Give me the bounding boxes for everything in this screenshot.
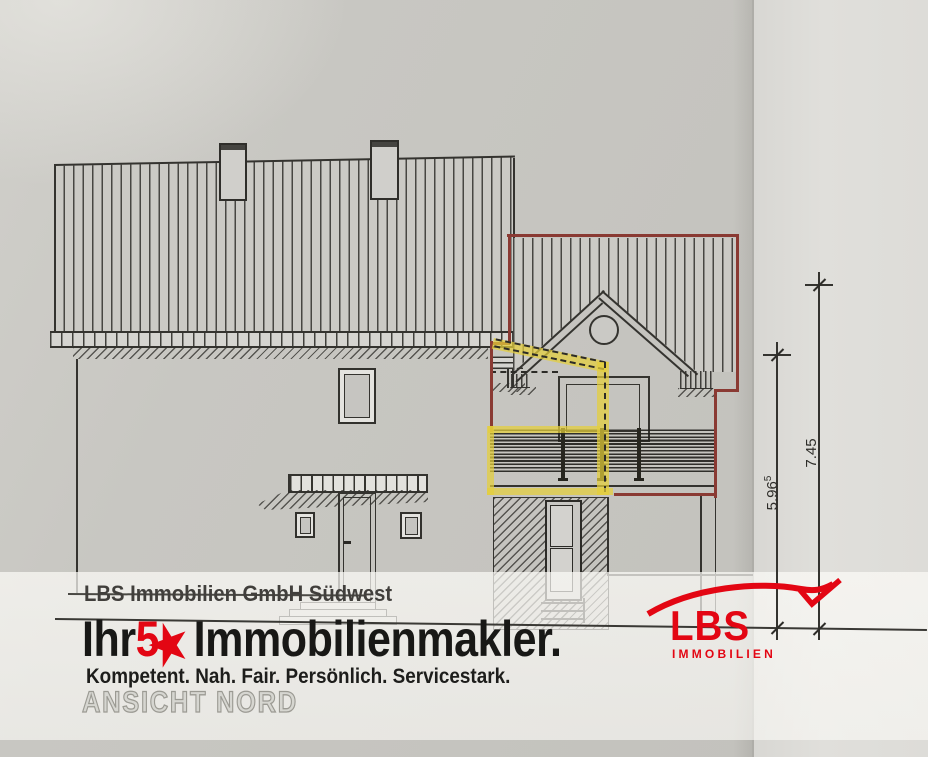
company-line: LBS Immobilien GmbH Südwest (84, 581, 392, 607)
chimney-left (219, 143, 247, 201)
red-outline-right-lower (714, 389, 717, 498)
window-pane (300, 517, 311, 534)
railing-post-foot (558, 478, 568, 481)
main-roof (54, 157, 514, 332)
window-pane (344, 374, 370, 418)
red-outline-top (507, 234, 739, 237)
side-window-right (400, 512, 422, 539)
side-window-left (295, 512, 315, 538)
door-handle (344, 541, 351, 544)
round-gable-window (589, 315, 619, 345)
red-outline-bottom (614, 493, 717, 496)
chimney-cap (372, 142, 397, 147)
view-title: ANSICHT NORD (82, 686, 298, 720)
chimney-cap (221, 145, 245, 150)
gable-fascia-right (680, 371, 713, 389)
lbs-logo: LBS IMMOBILIEN (643, 578, 855, 662)
hidden-wall-line (604, 362, 606, 492)
railing-post (561, 428, 565, 478)
door-leaf-top (343, 497, 371, 498)
red-outline-step (714, 389, 738, 392)
window-pane (405, 517, 418, 535)
soffit-hatch (510, 387, 536, 395)
eave-shadow-strip (73, 347, 488, 359)
hidden-line-horizontal (490, 371, 558, 373)
scanned-elevation-photo: 5.965 7.45 LBS Immobilien GmbH Südwest I… (0, 0, 928, 757)
lbs-logo-text: LBS (670, 605, 750, 647)
red-outline-left (508, 236, 511, 344)
door-top-line (338, 492, 376, 494)
headline: Ihr5★Immobilienmakler. (82, 613, 562, 665)
door-pane-top (550, 505, 573, 547)
house-wall-left (76, 359, 78, 593)
gable-fascia-left (511, 374, 530, 388)
highlight-bottom-band (487, 488, 613, 495)
highlight-left-band (487, 426, 494, 495)
lbs-logo-subtext: IMMOBILIEN (672, 648, 776, 660)
highlight-top-band (488, 426, 600, 433)
main-roof-left-edge (54, 165, 56, 332)
railing-post (637, 428, 641, 478)
main-roof-gutter (50, 331, 515, 348)
red-outline-right (736, 234, 739, 392)
railing-post-foot (634, 478, 644, 481)
headline-suffix: Immobilienmakler. (194, 611, 562, 667)
upper-window (338, 368, 376, 424)
headline-prefix: Ihr (82, 611, 136, 667)
chimney-right (370, 140, 399, 200)
soffit-hatch (678, 388, 715, 397)
red-outline-left-lower (490, 341, 493, 432)
